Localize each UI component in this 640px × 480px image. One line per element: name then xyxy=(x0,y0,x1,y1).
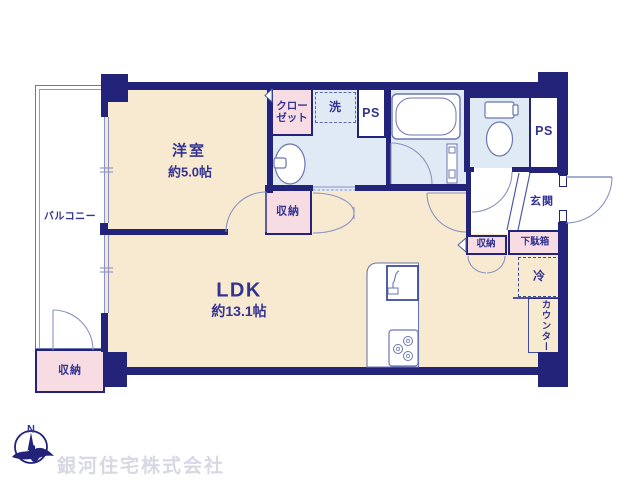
room-bathroom xyxy=(388,86,470,191)
wall-bottom xyxy=(103,367,568,375)
floorplan: バルコニー 洋室 約5.0帖 LDK 約13.1帖 クロー ゼット 洗 PS P… xyxy=(0,0,640,480)
compass-north-label: N xyxy=(27,424,35,437)
entrance-label: 玄関 xyxy=(530,196,554,209)
closet-label-line2: ゼット xyxy=(276,112,308,124)
wall-closet-west xyxy=(267,86,273,193)
wall-left-upper-seg xyxy=(101,102,108,117)
room-western xyxy=(104,86,276,234)
wall-western-south xyxy=(103,229,228,235)
wall-right-lower xyxy=(558,222,568,357)
shoe-box-label: 下駄箱 xyxy=(521,238,550,249)
storage-mid-label: 収納 xyxy=(276,206,300,219)
entrance-jamb-lower xyxy=(559,210,567,222)
pillar-bottom-left xyxy=(103,352,127,387)
wall-bath-toilet xyxy=(464,88,470,172)
room-ldk xyxy=(104,234,564,374)
entrance-jamb-upper xyxy=(559,175,567,187)
wall-right-upper xyxy=(558,88,568,175)
closet-label-line1: クロー xyxy=(276,100,308,112)
counter-label: カウンター xyxy=(539,300,550,353)
wall-bath-west xyxy=(386,86,391,191)
laundry-label: 洗 xyxy=(329,101,341,115)
closet-label: クロー ゼット xyxy=(276,100,308,124)
wall-bath-south xyxy=(388,184,470,191)
balcony-label: バルコニー xyxy=(44,211,96,223)
pillar-top-left xyxy=(101,74,128,102)
storage-hall-label: 収納 xyxy=(476,240,495,251)
company-watermark: 銀河住宅株式会社 xyxy=(57,451,225,478)
pipe-space-right-label: PS xyxy=(535,124,553,138)
wall-hall-west xyxy=(466,168,471,235)
wall-kitchen-stub xyxy=(382,320,387,368)
wall-left-lower-seg xyxy=(101,313,108,352)
wall-washroom-south-right xyxy=(355,185,390,191)
ldk-size: 約13.1帖 xyxy=(211,303,266,319)
storage-balcony-label: 収納 xyxy=(58,365,82,378)
wall-hall-north-right xyxy=(512,167,562,172)
entrance-door-arc xyxy=(566,177,612,223)
western-room-label: 洋室 xyxy=(172,142,206,159)
western-room-size: 約5.0帖 xyxy=(168,166,212,181)
bird-logo-icon xyxy=(12,445,54,462)
wall-washroom-south-left xyxy=(265,185,313,191)
refrigerator-label: 冷 xyxy=(533,270,545,284)
ldk-label: LDK xyxy=(216,280,262,303)
pipe-space-left-label: PS xyxy=(362,106,380,120)
room-toilet xyxy=(468,90,532,172)
